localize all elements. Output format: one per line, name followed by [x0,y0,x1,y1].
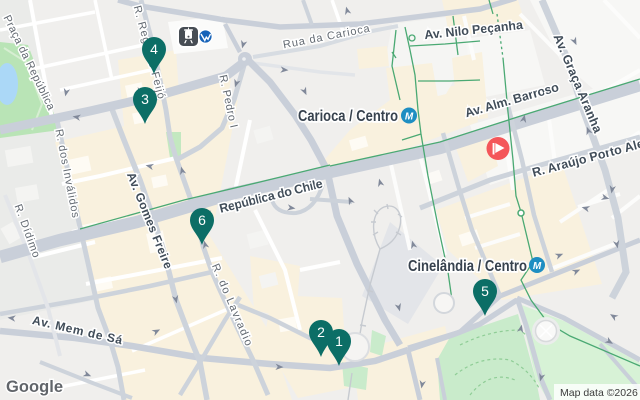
svg-text:M: M [405,112,414,123]
svg-text:2: 2 [317,324,325,340]
svg-text:Carioca / Centro: Carioca / Centro [298,108,398,125]
svg-text:3: 3 [141,91,149,107]
svg-text:Google: Google [6,378,63,396]
svg-text:Map data ©2026: Map data ©2026 [560,387,638,399]
svg-text:4: 4 [150,41,158,57]
svg-text:6: 6 [198,212,206,228]
svg-text:Cinelândia / Centro: Cinelândia / Centro [408,258,527,275]
svg-text:5: 5 [481,283,489,299]
svg-text:M: M [533,261,542,272]
svg-text:1: 1 [335,333,343,349]
